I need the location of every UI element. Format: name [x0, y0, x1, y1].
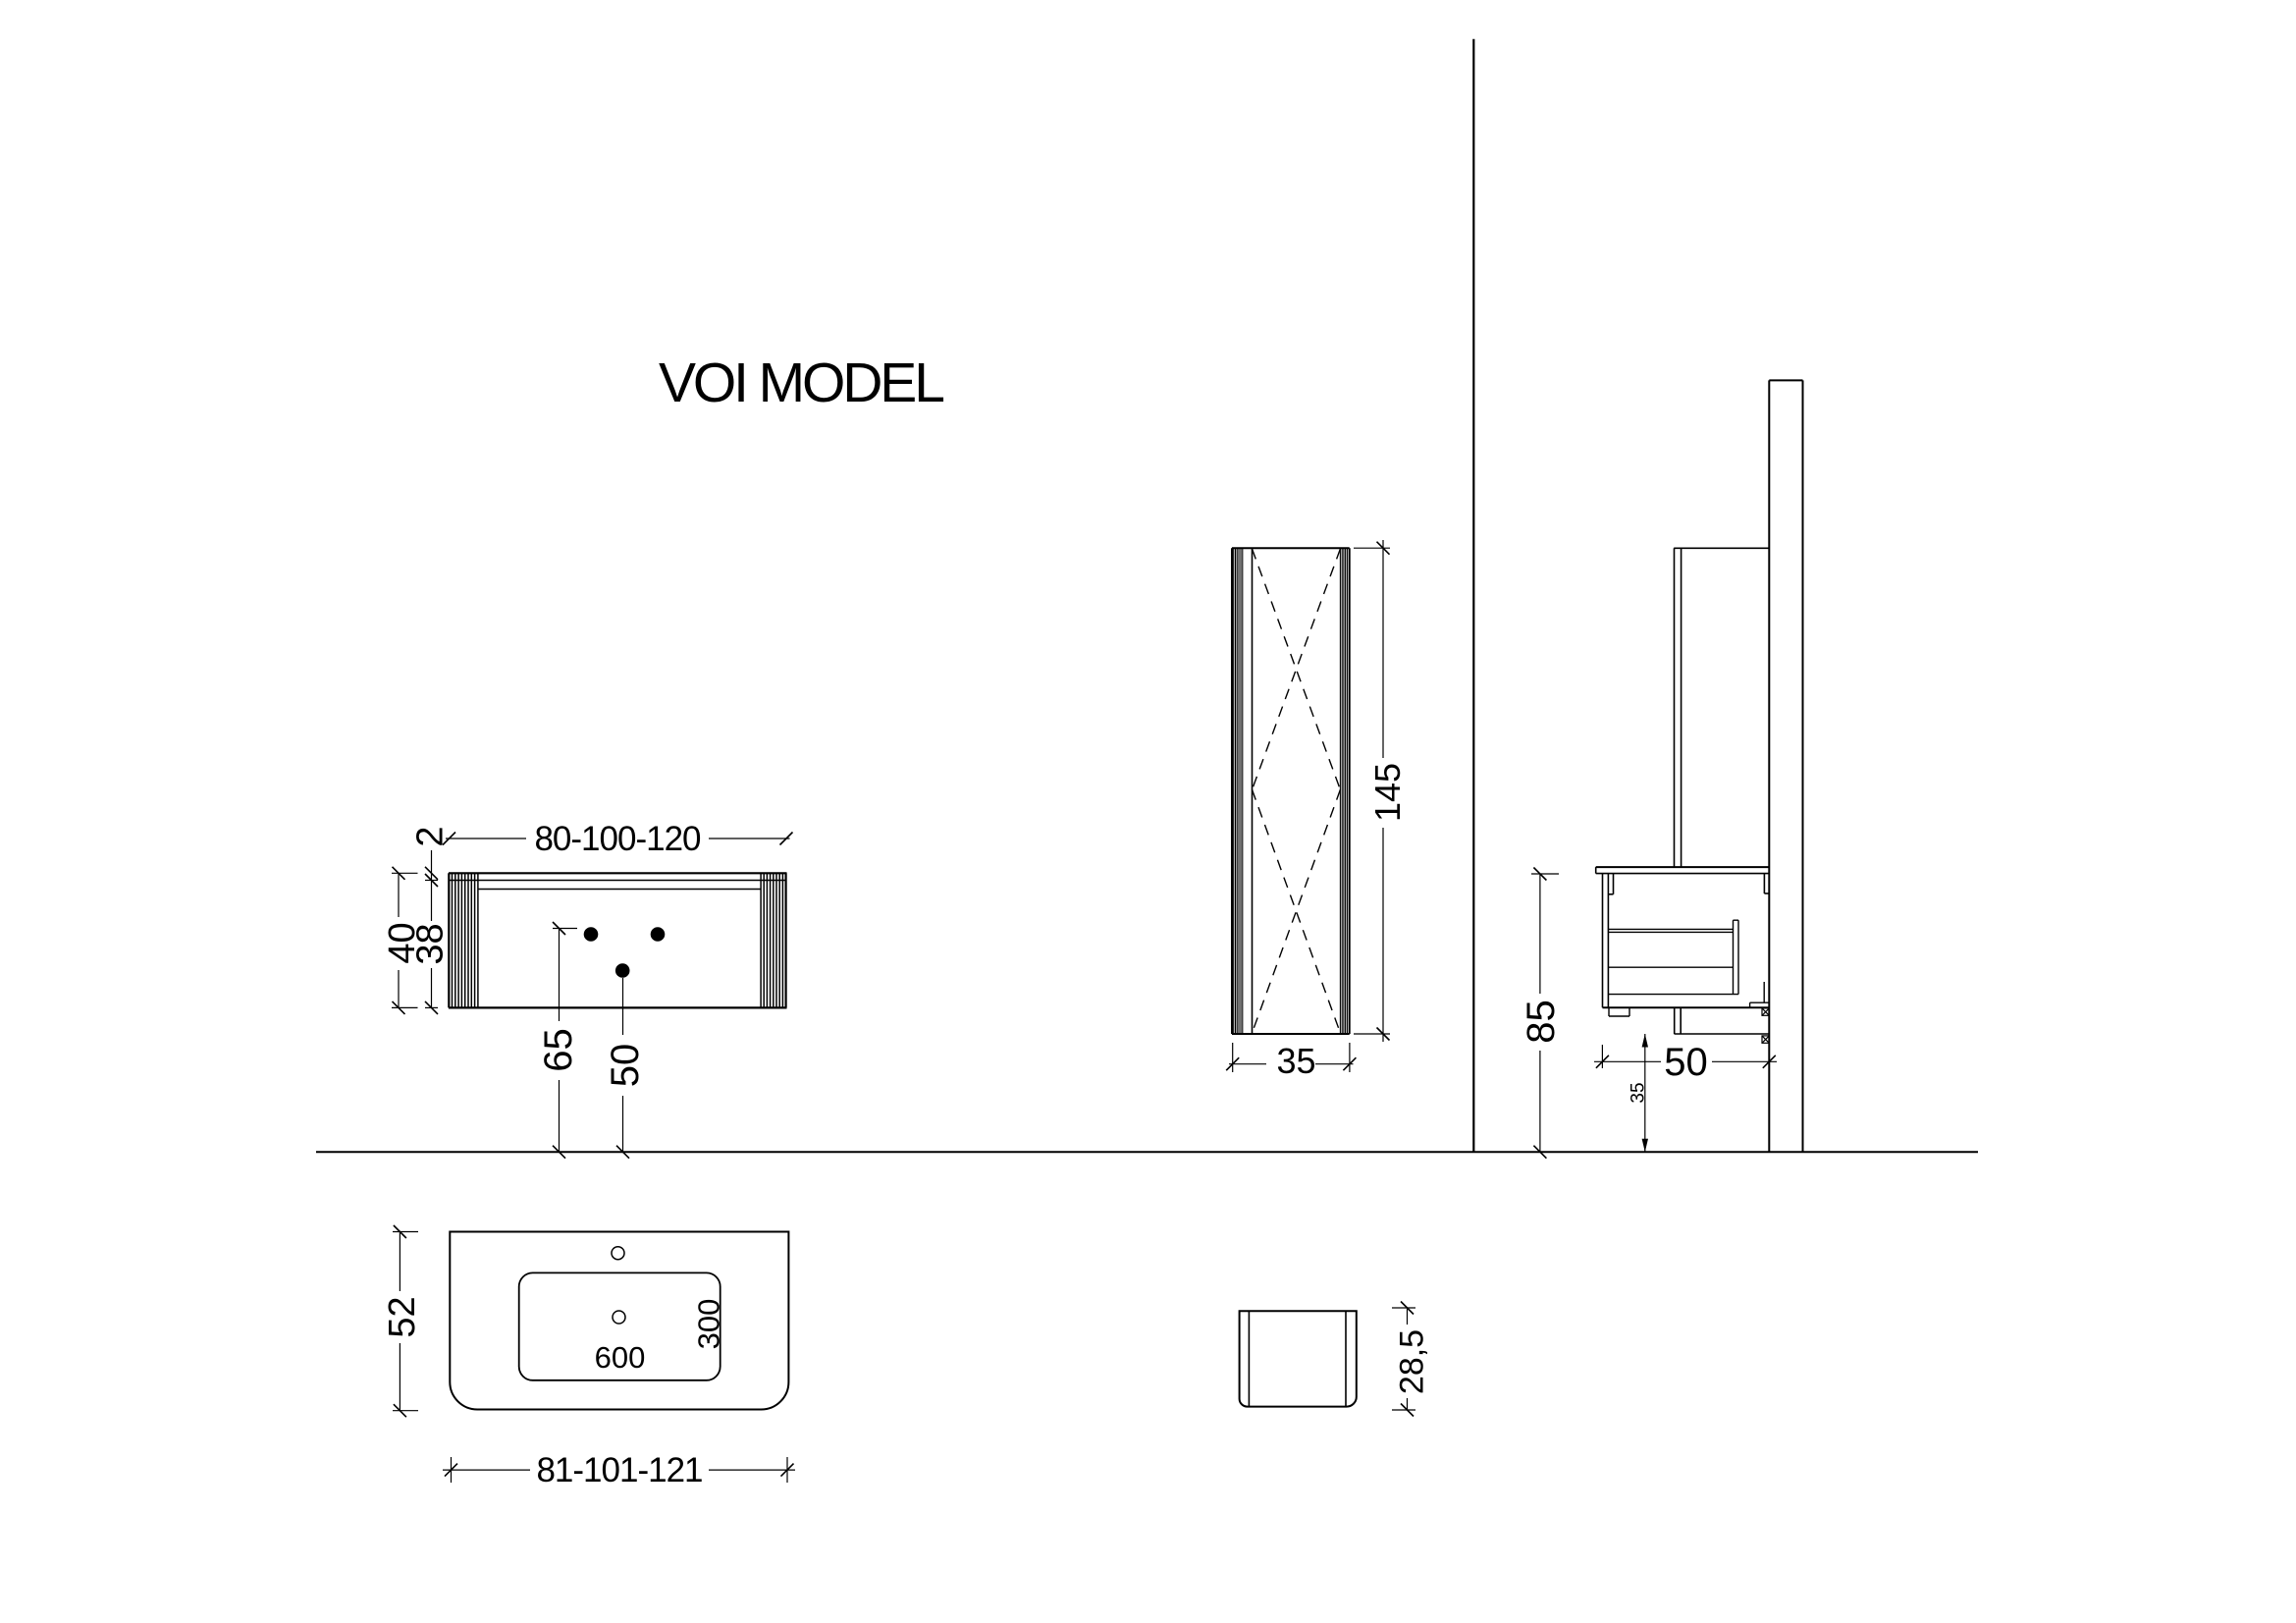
svg-text:85: 85 — [1520, 1000, 1563, 1044]
svg-text:80-100-120: 80-100-120 — [534, 820, 701, 858]
svg-text:600: 600 — [595, 1340, 646, 1375]
svg-text:35: 35 — [1276, 1041, 1315, 1081]
svg-text:38: 38 — [410, 923, 452, 964]
svg-text:52: 52 — [382, 1296, 423, 1337]
svg-text:81-101-121: 81-101-121 — [536, 1451, 702, 1489]
svg-text:VOI MODEL: VOI MODEL — [659, 352, 943, 414]
svg-text:28,5: 28,5 — [1394, 1329, 1431, 1394]
svg-text:50: 50 — [1664, 1041, 1708, 1084]
svg-text:50: 50 — [604, 1044, 647, 1088]
svg-text:145: 145 — [1367, 763, 1408, 822]
svg-text:65: 65 — [537, 1028, 580, 1072]
svg-text:35: 35 — [1629, 1082, 1649, 1103]
svg-text:300: 300 — [692, 1299, 726, 1350]
